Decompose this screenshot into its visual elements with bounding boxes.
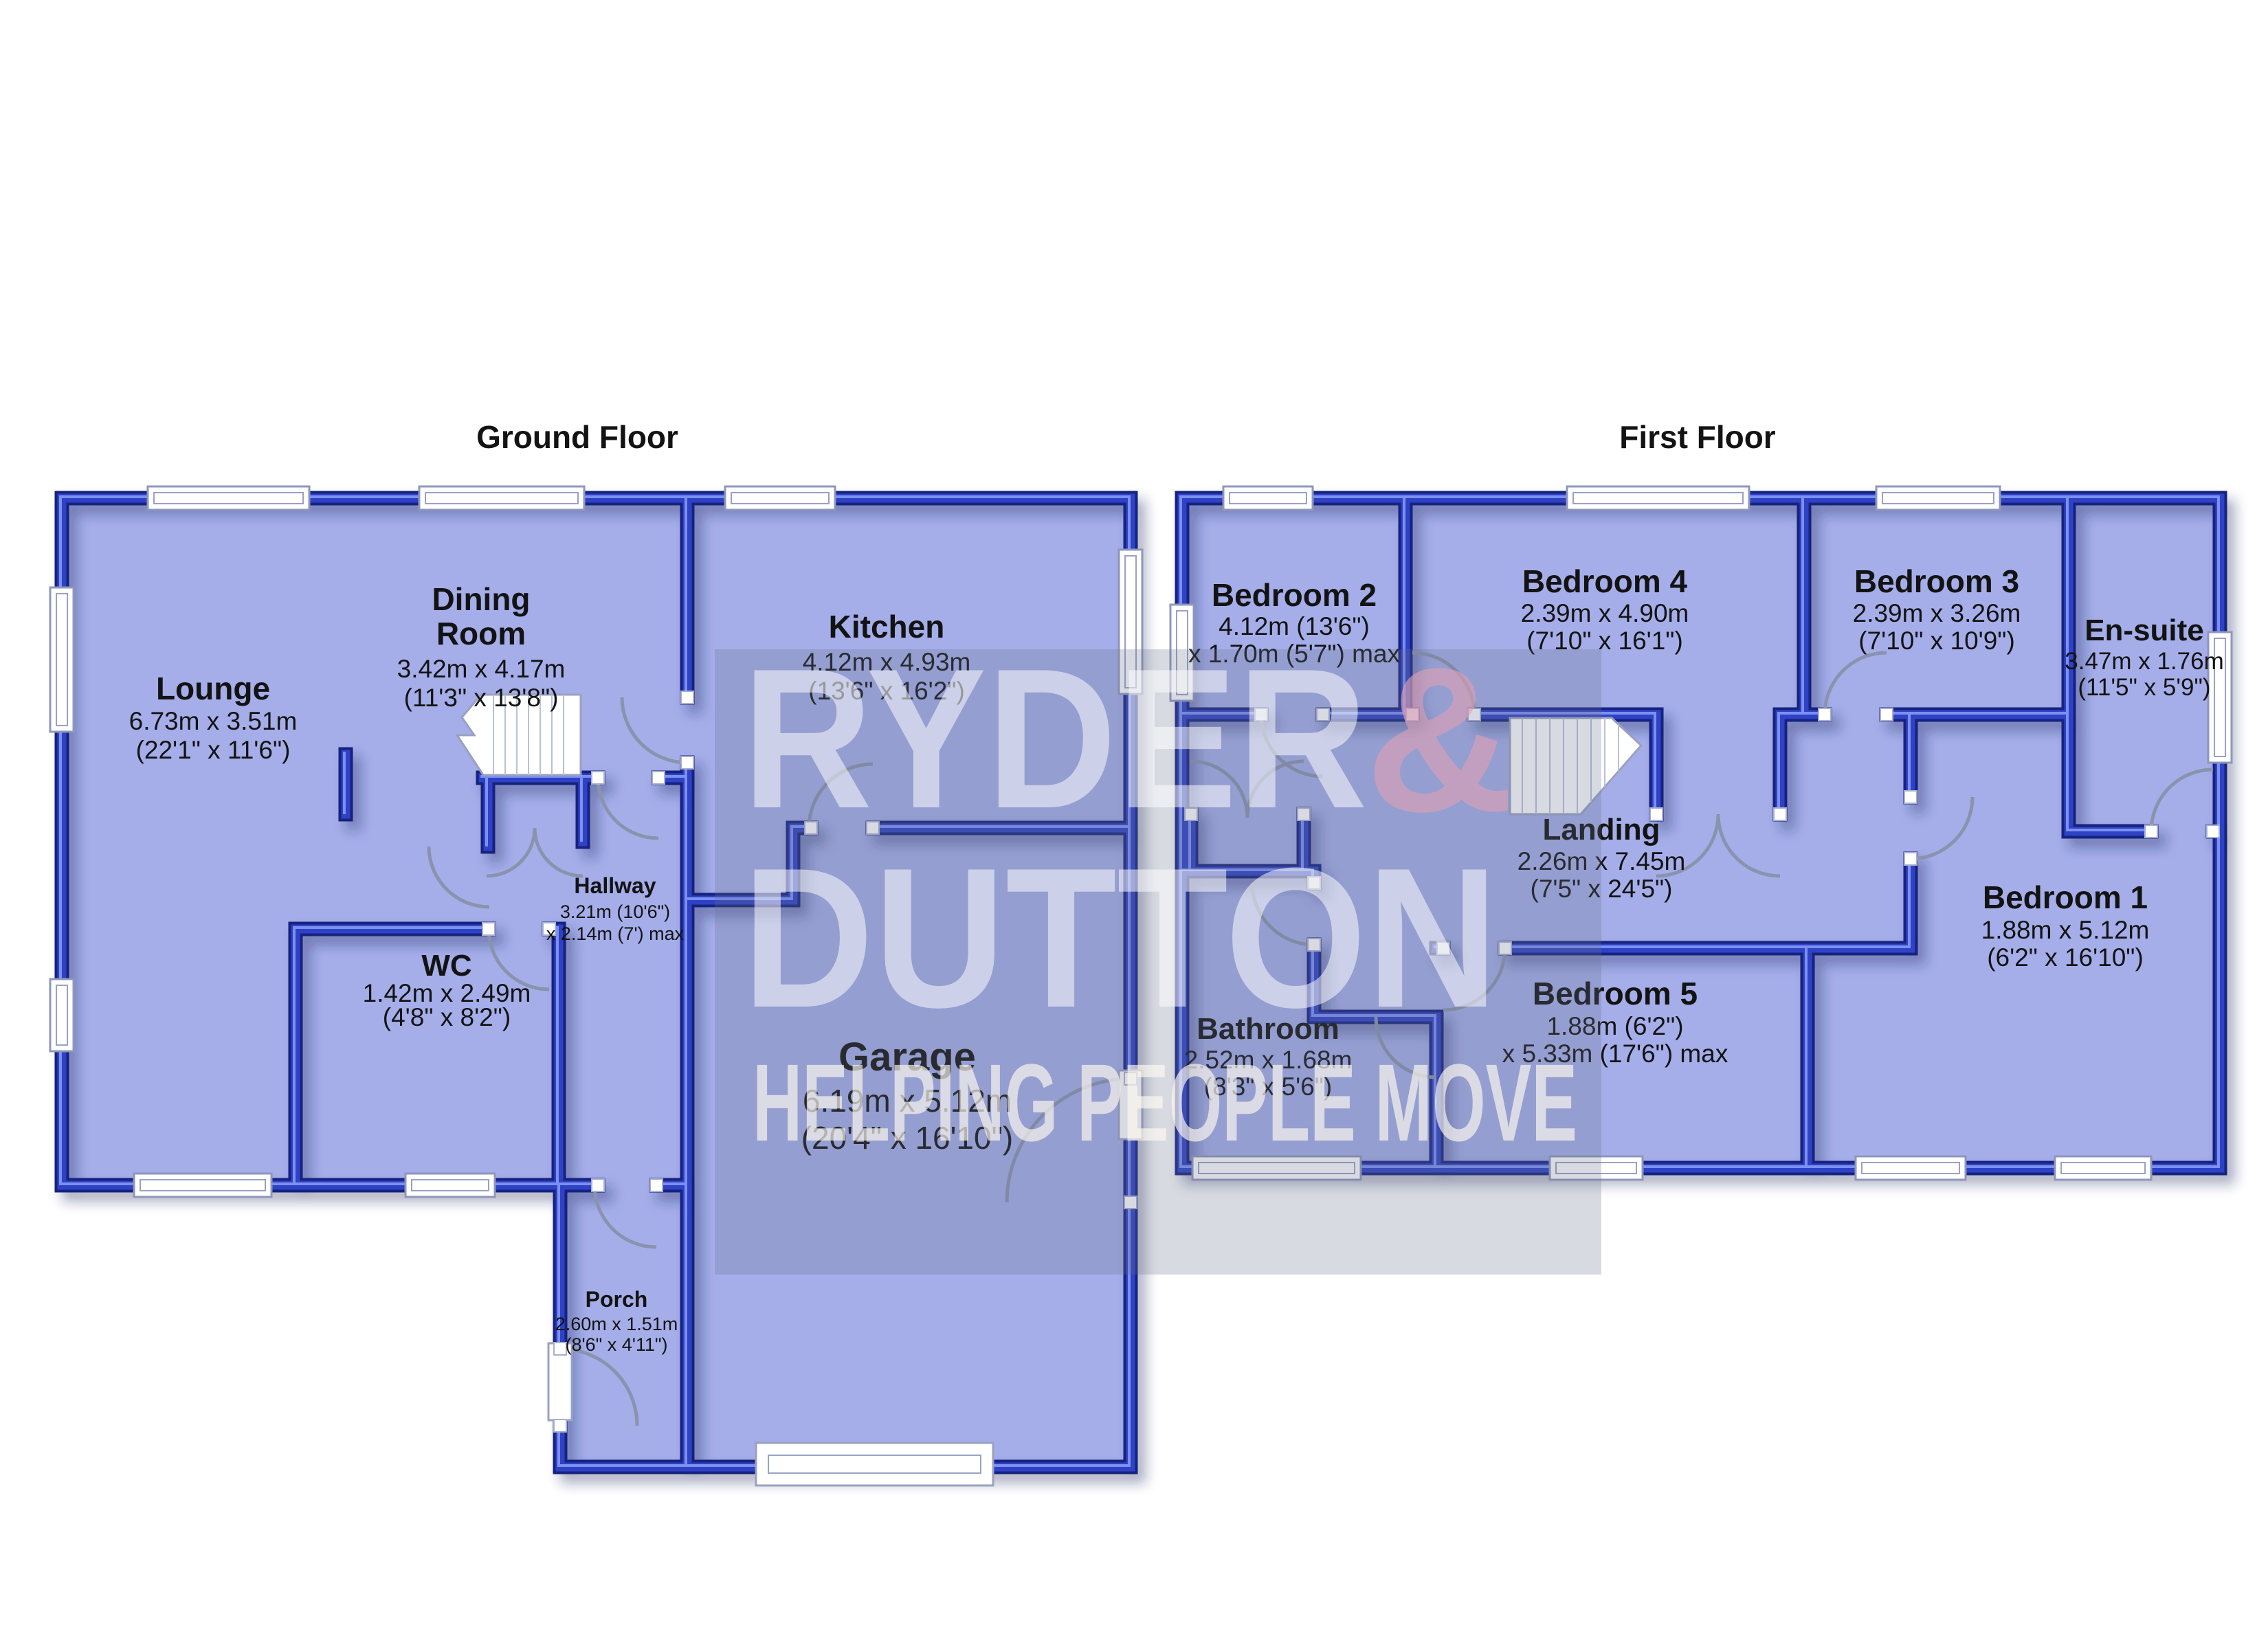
room-name: Lounge bbox=[156, 671, 270, 706]
window bbox=[148, 486, 309, 510]
watermark-ampersand: & bbox=[1366, 624, 1515, 855]
room-name: Dining bbox=[432, 581, 530, 617]
door-jamb bbox=[650, 1179, 663, 1191]
floorplan-canvas: Ground Floor Lounge 6.73m x 3.51m (22'1"… bbox=[0, 0, 2268, 1649]
door-jamb bbox=[554, 1420, 566, 1432]
room-name: Room bbox=[436, 616, 526, 651]
room-dim-metric: 3.47m x 1.76m bbox=[2065, 648, 2224, 675]
window bbox=[1876, 486, 2000, 510]
window bbox=[50, 587, 74, 732]
room-name: Porch bbox=[586, 1287, 648, 1312]
watermark-tagline: HELPING PEOPLE MOVE bbox=[753, 1041, 1577, 1164]
room-dim-metric: 3.42m x 4.17m bbox=[397, 655, 566, 683]
room-name: Bedroom 2 bbox=[1212, 577, 1377, 613]
room-name: Bedroom 1 bbox=[1983, 879, 2148, 915]
room-label-ensuite: En-suite 3.47m x 1.76m (11'5" x 5'9") bbox=[2065, 614, 2224, 701]
room-dim-imperial: (22'1" x 11'6") bbox=[136, 736, 291, 764]
window bbox=[1223, 486, 1313, 510]
room-dim-metric: 2.60m x 1.51m bbox=[555, 1314, 678, 1334]
window bbox=[50, 979, 74, 1051]
garage-door bbox=[756, 1443, 993, 1485]
door-jamb bbox=[652, 772, 665, 784]
door-jamb bbox=[1819, 708, 1831, 721]
watermark-brand-line2: DUTTON bbox=[742, 827, 1498, 1049]
window bbox=[2055, 1156, 2151, 1180]
room-label-bedroom4: Bedroom 4 2.39m x 4.90m (7'10" x 16'1") bbox=[1521, 563, 1689, 655]
door-jamb bbox=[592, 772, 604, 784]
door-jamb bbox=[681, 691, 693, 704]
door-jamb bbox=[2145, 825, 2157, 838]
window bbox=[1567, 486, 1749, 510]
window bbox=[419, 486, 584, 510]
room-dim-imperial: (7'10" x 10'9") bbox=[1858, 627, 2015, 655]
room-label-bedroom3: Bedroom 3 2.39m x 3.26m (7'10" x 10'9") bbox=[1853, 563, 2021, 655]
door-jamb bbox=[681, 756, 693, 769]
window bbox=[725, 486, 835, 510]
door-jamb bbox=[1880, 708, 1893, 721]
door-jamb bbox=[2207, 825, 2219, 838]
room-dim-metric: 2.39m x 4.90m bbox=[1521, 599, 1689, 627]
room-dim-imperial: (11'3" x 13'8") bbox=[404, 684, 559, 712]
door-jamb bbox=[592, 1179, 604, 1191]
room-name: Hallway bbox=[574, 873, 656, 898]
room-dim-imperial: (11'5" x 5'9") bbox=[2078, 674, 2210, 701]
watermark-brand-line1: RYDER bbox=[742, 627, 1368, 850]
room-label-bedroom1: Bedroom 1 1.88m x 5.12m (6'2" x 16'10") bbox=[1981, 879, 2150, 972]
room-dim-metric: 6.73m x 3.51m bbox=[129, 707, 298, 735]
window bbox=[1856, 1156, 1966, 1180]
door-jamb bbox=[482, 923, 495, 935]
door-jamb bbox=[1904, 853, 1917, 865]
door-jamb bbox=[1774, 808, 1786, 820]
window bbox=[405, 1174, 495, 1197]
room-name: Bedroom 4 bbox=[1522, 563, 1688, 599]
ground-floor-title: Ground Floor bbox=[476, 419, 678, 455]
watermark: RYDER & DUTTON HELPING PEOPLE MOVE bbox=[715, 624, 1601, 1275]
room-name: WC bbox=[421, 949, 471, 983]
room-dim-metric: 1.88m x 5.12m bbox=[1981, 916, 2150, 944]
room-dim-metric: 2.39m x 3.26m bbox=[1853, 599, 2021, 627]
room-dim-imperial: (4'8" x 8'2") bbox=[383, 1003, 511, 1031]
first-floor-title: First Floor bbox=[1619, 419, 1776, 455]
window bbox=[134, 1174, 271, 1197]
door-jamb bbox=[1904, 791, 1917, 803]
room-dim-imperial: x 2.14m (7') max bbox=[546, 923, 685, 944]
room-name: Bedroom 3 bbox=[1854, 563, 2019, 599]
room-name: En-suite bbox=[2084, 614, 2204, 647]
room-dim-imperial: (8'6" x 4'11") bbox=[565, 1334, 667, 1355]
room-dim-imperial: (6'2" x 16'10") bbox=[1987, 943, 2144, 972]
room-dim-metric: 3.21m (10'6") bbox=[560, 901, 670, 922]
door-jamb bbox=[554, 1343, 566, 1355]
